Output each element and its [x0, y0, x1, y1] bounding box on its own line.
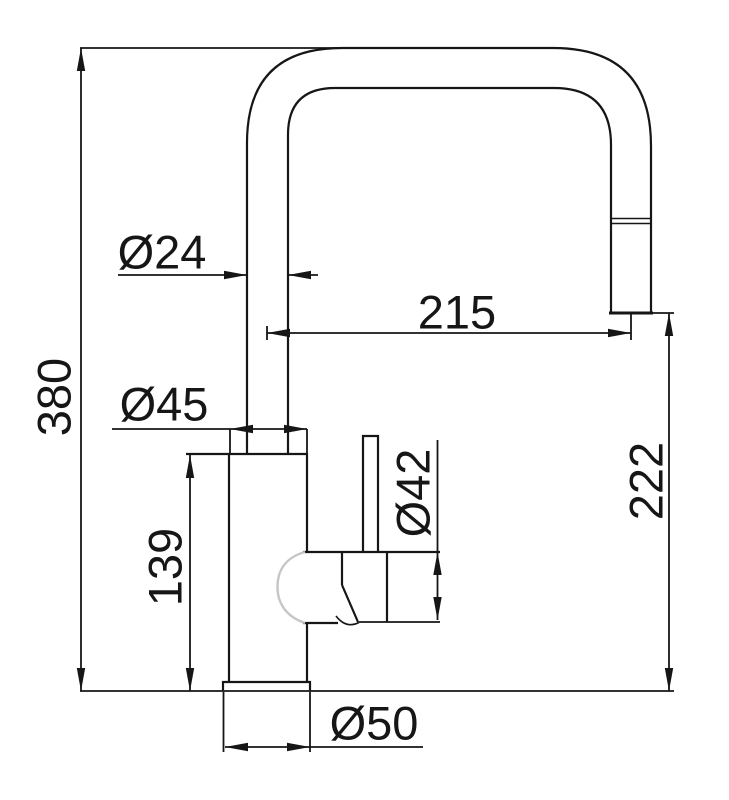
technical-drawing: 380 Ø24 215 Ø45 139 Ø42 222 Ø50	[0, 0, 729, 800]
arrow-reach-left	[267, 329, 290, 337]
arrow-body-height-bottom	[186, 668, 194, 691]
label-total-height: 380	[28, 358, 81, 436]
arrow-tube-right	[288, 271, 311, 279]
dimension-labels: 380 Ø24 215 Ø45 139 Ø42 222 Ø50	[28, 226, 673, 750]
arrow-base-right	[287, 743, 310, 751]
spout-tube-outer-edge	[247, 48, 651, 455]
arrow-housing-bottom	[433, 597, 441, 620]
faucet-outline	[186, 48, 653, 691]
faucet-dimension-diagram: 380 Ø24 215 Ø45 139 Ø42 222 Ø50	[0, 0, 729, 800]
arrow-body-diameter-left	[230, 425, 253, 433]
label-tube-diameter: Ø24	[118, 226, 207, 279]
arrow-total-height-top	[77, 48, 85, 71]
arrow-total-height-bottom	[77, 668, 85, 691]
valve-housing-diagonal-edge	[342, 585, 358, 622]
handle-lever	[363, 436, 378, 552]
label-reach: 215	[418, 286, 496, 339]
body-junction-curve	[278, 552, 306, 623]
label-base-diameter: Ø50	[330, 697, 419, 750]
label-body-height: 139	[139, 528, 192, 606]
arrow-tube-left	[224, 271, 247, 279]
arrow-clearance-top	[665, 313, 673, 336]
spout-tube-inner-edge	[288, 88, 611, 455]
arrow-reach-right	[608, 329, 631, 337]
label-body-diameter: Ø45	[120, 378, 209, 431]
label-clearance: 222	[620, 442, 673, 520]
arrow-body-diameter-right	[284, 425, 307, 433]
arrow-housing-top	[433, 552, 441, 575]
arrow-clearance-bottom	[665, 668, 673, 691]
label-housing-diameter: Ø42	[387, 449, 440, 538]
base-cap	[223, 682, 310, 691]
arrow-body-height-top	[186, 455, 194, 478]
arrow-base-left	[225, 743, 248, 751]
